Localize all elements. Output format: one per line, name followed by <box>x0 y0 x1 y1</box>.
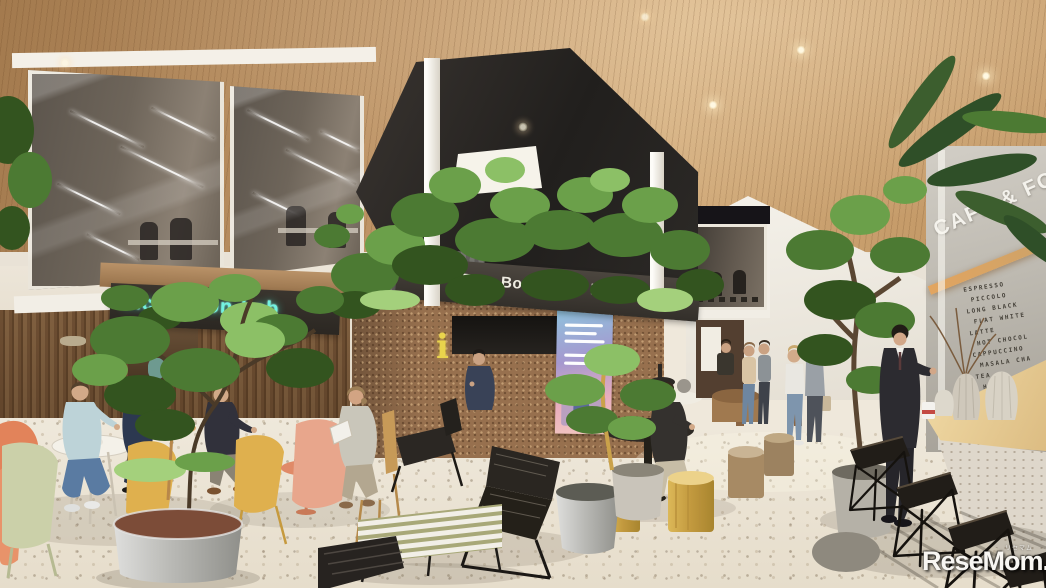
wood-stump-stool <box>764 438 794 476</box>
seated-person <box>717 353 734 375</box>
corner-foliage <box>0 96 364 250</box>
roof-garden-foliage <box>220 157 724 338</box>
wood-chair <box>382 410 398 474</box>
receptionist <box>465 349 495 410</box>
concrete-planter <box>612 470 664 521</box>
silver-planter <box>556 492 620 554</box>
watermark-furigana: リセマム <box>1005 543 1033 552</box>
yellow-chair <box>234 435 284 513</box>
sage-chair <box>2 443 58 549</box>
counter-props <box>922 308 1018 420</box>
wood-stump-stool <box>728 452 764 498</box>
atrium-rendering: CAFE & FOOD ESPRESSO PICCOLO LONG BLACK … <box>0 0 1046 588</box>
gold-stump-stool <box>668 478 714 532</box>
center-furniture <box>545 344 794 554</box>
vase <box>934 390 953 416</box>
boulder <box>812 532 880 572</box>
scene-overlay <box>0 0 1046 588</box>
seated-man-center <box>650 402 687 464</box>
resemom-watermark: ReseMom. リセマム <box>922 546 1046 577</box>
